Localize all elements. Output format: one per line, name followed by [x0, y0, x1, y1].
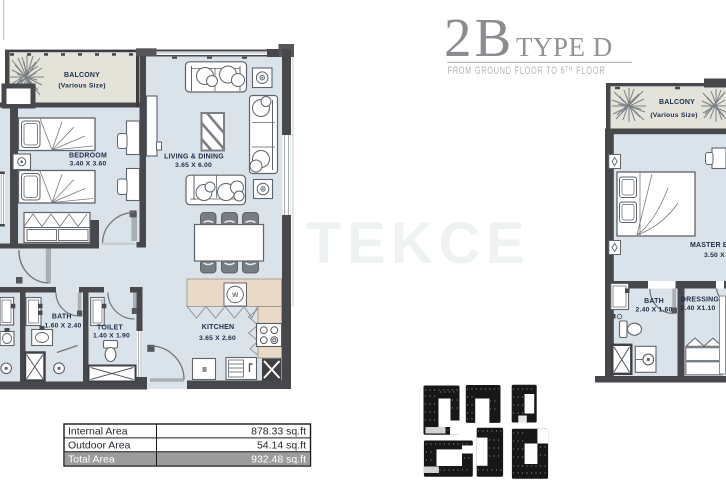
svg-text:1.40 X 1.90: 1.40 X 1.90 [93, 333, 130, 340]
svg-text:Outdoor Area: Outdoor Area [68, 440, 131, 452]
svg-text:3.40 X 3.60: 3.40 X 3.60 [70, 161, 107, 168]
svg-text:BALCONY: BALCONY [659, 99, 695, 106]
svg-text:BATH: BATH [644, 298, 664, 305]
svg-text:878.33 sq.ft: 878.33 sq.ft [251, 426, 306, 438]
svg-text:TEKCE: TEKCE [306, 211, 530, 276]
svg-text:LIVING & DINING: LIVING & DINING [164, 154, 224, 161]
svg-text:FROM GROUND FLOOR TO 6TH FLOOR: FROM GROUND FLOOR TO 6TH FLOOR [448, 65, 606, 77]
svg-text:DRESSING: DRESSING [681, 297, 720, 304]
svg-text:TYPE D: TYPE D [516, 32, 613, 62]
svg-text:2.40 X1.10: 2.40 X1.10 [681, 305, 716, 312]
svg-text:(Various Size): (Various Size) [58, 83, 105, 90]
svg-text:932.48 sq.ft: 932.48 sq.ft [251, 453, 306, 465]
svg-text:3.65 X 2.60: 3.65 X 2.60 [199, 335, 236, 342]
svg-text:1.60 X 2.40: 1.60 X 2.40 [45, 323, 82, 330]
svg-text:KITCHEN: KITCHEN [202, 324, 235, 331]
svg-text:2B: 2B [444, 7, 514, 68]
svg-text:W: W [232, 292, 239, 299]
svg-text:3.50 X 6.1: 3.50 X 6.1 [704, 252, 726, 259]
svg-text:(Various Size): (Various Size) [650, 112, 697, 119]
svg-text:BALCONY: BALCONY [64, 72, 100, 79]
svg-text:3.65 X 6.00: 3.65 X 6.00 [175, 162, 212, 169]
svg-text:MASTER BED: MASTER BED [690, 242, 726, 249]
svg-text:Total Area: Total Area [68, 453, 115, 465]
svg-text:BEDROOM: BEDROOM [69, 153, 107, 160]
svg-text:2.40 X 1.60: 2.40 X 1.60 [636, 307, 673, 314]
svg-text:BATH: BATH [52, 314, 72, 321]
svg-text:Internal Area: Internal Area [68, 426, 128, 438]
svg-text:54.14 sq.ft: 54.14 sq.ft [257, 440, 306, 452]
svg-text:TOILET: TOILET [97, 325, 123, 332]
